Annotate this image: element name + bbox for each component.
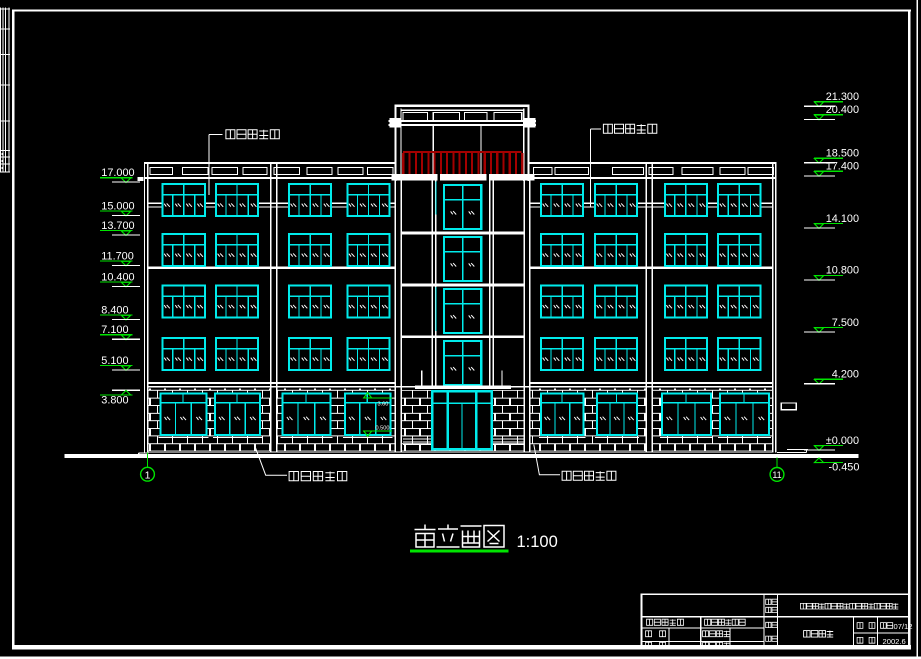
svg-text:0.500: 0.500 [376, 426, 390, 432]
svg-text:11: 11 [772, 470, 781, 480]
svg-text:3.60: 3.60 [378, 401, 389, 407]
svg-text:2002.6: 2002.6 [883, 637, 906, 646]
svg-text:1:100: 1:100 [517, 533, 558, 551]
svg-text:3.800: 3.800 [101, 394, 128, 406]
svg-text:-0.450: -0.450 [829, 462, 860, 474]
svg-text:07/12: 07/12 [894, 622, 913, 631]
svg-text:1: 1 [145, 469, 151, 481]
